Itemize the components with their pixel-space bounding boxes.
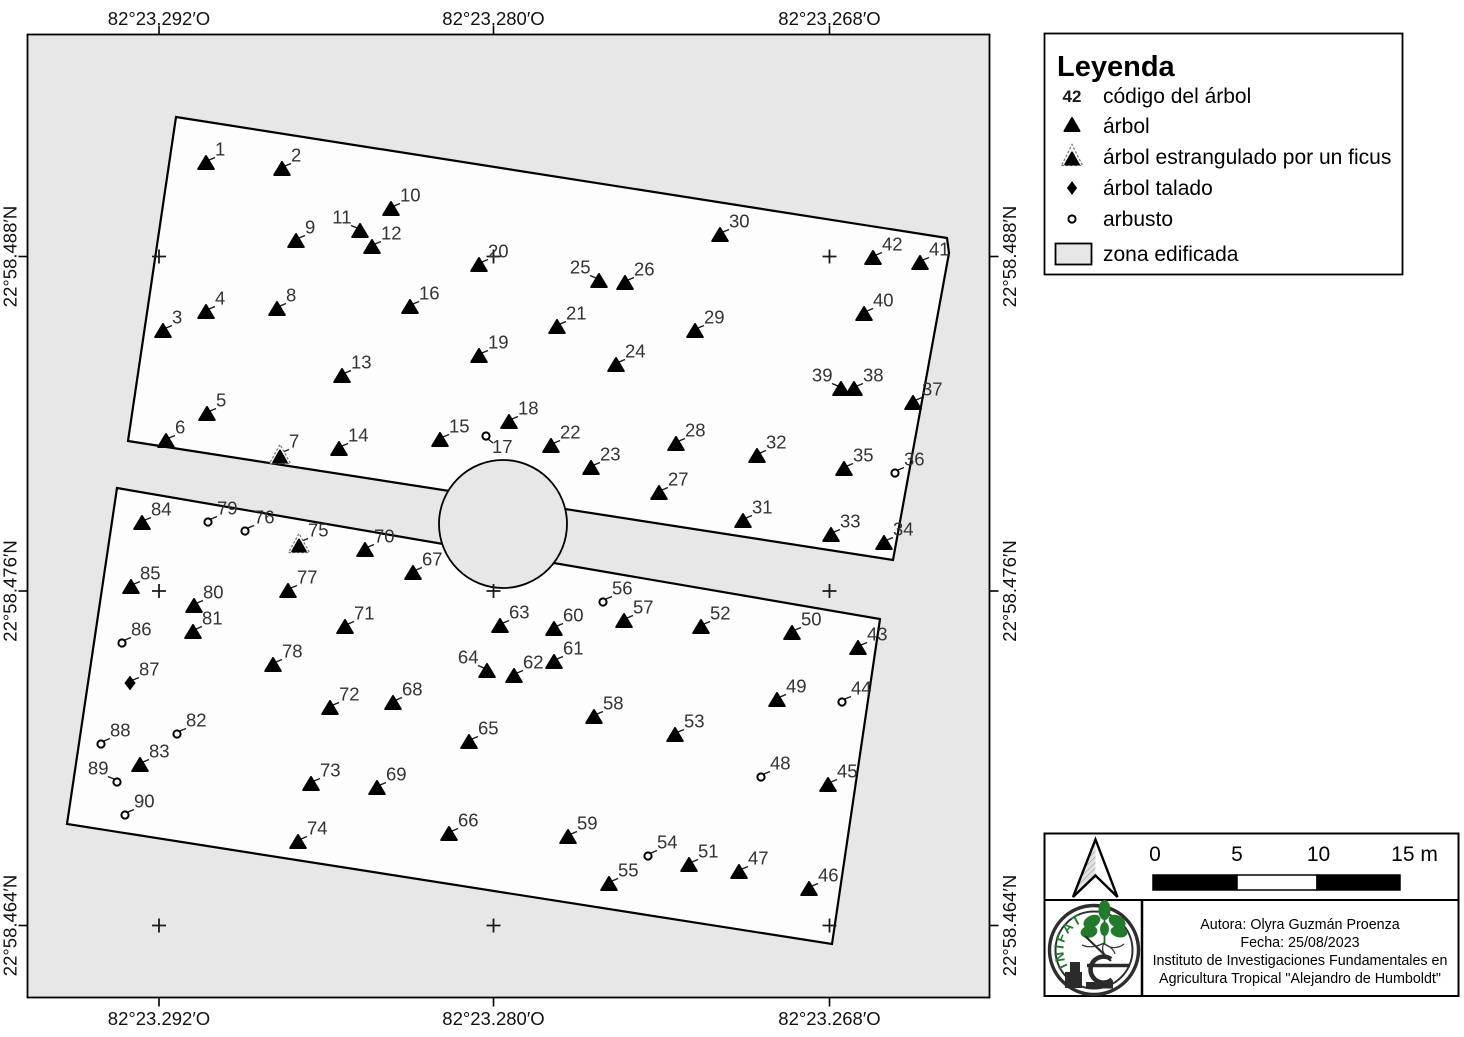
svg-text:22°58.476′N: 22°58.476′N	[0, 540, 21, 641]
svg-text:30: 30	[729, 211, 750, 232]
svg-text:59: 59	[577, 813, 598, 834]
svg-text:Instituto de Investigaciones F: Instituto de Investigaciones Fundamental…	[1153, 953, 1448, 969]
svg-text:27: 27	[668, 469, 689, 490]
svg-text:82°23.292′O: 82°23.292′O	[108, 8, 210, 29]
svg-text:62: 62	[523, 652, 544, 673]
svg-text:76: 76	[254, 507, 275, 528]
svg-text:32: 32	[766, 432, 787, 453]
svg-text:9: 9	[305, 217, 315, 238]
svg-text:49: 49	[786, 676, 807, 697]
svg-text:81: 81	[202, 608, 223, 629]
svg-text:87: 87	[139, 659, 160, 680]
svg-text:67: 67	[422, 549, 443, 570]
svg-text:12: 12	[381, 223, 402, 244]
svg-text:44: 44	[851, 678, 872, 699]
svg-text:14: 14	[348, 425, 369, 446]
svg-text:63: 63	[509, 602, 530, 623]
svg-text:88: 88	[110, 720, 131, 741]
svg-text:31: 31	[752, 497, 773, 518]
svg-text:36: 36	[904, 449, 925, 470]
svg-text:68: 68	[402, 679, 423, 700]
svg-text:77: 77	[297, 567, 318, 588]
svg-text:64: 64	[458, 647, 479, 668]
svg-text:5: 5	[216, 390, 226, 411]
svg-text:69: 69	[386, 764, 407, 785]
svg-text:Autora: Olyra Guzmán Proenza: Autora: Olyra Guzmán Proenza	[1200, 917, 1400, 933]
svg-text:82°23.268′O: 82°23.268′O	[778, 8, 880, 29]
svg-text:50: 50	[801, 609, 822, 630]
svg-text:43: 43	[867, 624, 888, 645]
svg-text:34: 34	[893, 519, 914, 540]
svg-text:47: 47	[748, 848, 769, 869]
svg-text:28: 28	[685, 420, 706, 441]
svg-text:22°58.488′N: 22°58.488′N	[999, 206, 1020, 307]
svg-text:52: 52	[710, 603, 731, 624]
svg-text:55: 55	[618, 860, 639, 881]
svg-text:78: 78	[282, 641, 303, 662]
svg-text:21: 21	[566, 303, 587, 324]
svg-text:53: 53	[684, 711, 705, 732]
svg-text:18: 18	[518, 398, 539, 419]
svg-text:22°58.464′N: 22°58.464′N	[999, 875, 1020, 976]
svg-text:79: 79	[217, 498, 238, 519]
svg-text:arbusto: arbusto	[1103, 208, 1173, 231]
svg-text:26: 26	[634, 259, 655, 280]
svg-text:80: 80	[203, 582, 224, 603]
svg-text:1: 1	[215, 139, 225, 160]
svg-text:11: 11	[332, 207, 351, 228]
svg-text:82°23.268′O: 82°23.268′O	[778, 1008, 880, 1029]
svg-text:38: 38	[863, 365, 884, 386]
svg-text:25: 25	[570, 257, 591, 278]
svg-text:10: 10	[1307, 843, 1330, 866]
svg-text:árbol talado: árbol talado	[1103, 177, 1213, 200]
svg-text:árbol estrangulado por un ficu: árbol estrangulado por un ficus	[1103, 146, 1391, 169]
svg-text:37: 37	[922, 379, 943, 400]
svg-text:42: 42	[882, 234, 903, 255]
svg-text:3: 3	[172, 307, 182, 328]
svg-text:22°58.464′N: 22°58.464′N	[0, 875, 21, 976]
svg-text:5: 5	[1231, 843, 1243, 866]
svg-text:24: 24	[625, 341, 646, 362]
svg-text:46: 46	[818, 865, 839, 886]
svg-text:82: 82	[186, 710, 207, 731]
svg-text:58: 58	[603, 693, 624, 714]
svg-text:42: 42	[1063, 87, 1082, 106]
svg-text:35: 35	[853, 445, 874, 466]
svg-text:60: 60	[563, 605, 584, 626]
svg-text:árbol: árbol	[1103, 115, 1150, 138]
svg-text:22°58.488′N: 22°58.488′N	[0, 206, 21, 307]
svg-text:71: 71	[354, 603, 375, 624]
svg-text:17: 17	[492, 436, 513, 457]
svg-text:45: 45	[837, 761, 858, 782]
svg-text:82°23.280′O: 82°23.280′O	[442, 8, 544, 29]
svg-text:7: 7	[289, 431, 299, 452]
svg-text:0: 0	[1149, 843, 1161, 866]
svg-text:65: 65	[478, 718, 499, 739]
svg-text:8: 8	[286, 285, 296, 306]
svg-text:90: 90	[134, 791, 155, 812]
svg-text:Fecha: 25/08/2023: Fecha: 25/08/2023	[1240, 935, 1359, 951]
svg-text:75: 75	[308, 520, 329, 541]
svg-text:61: 61	[563, 638, 584, 659]
svg-text:82°23.280′O: 82°23.280′O	[442, 1008, 544, 1029]
svg-text:66: 66	[458, 810, 479, 831]
svg-text:22°58.476′N: 22°58.476′N	[999, 540, 1020, 641]
svg-text:54: 54	[657, 832, 678, 853]
svg-text:39: 39	[812, 365, 833, 386]
svg-text:código del árbol: código del árbol	[1103, 85, 1251, 108]
svg-text:20: 20	[488, 241, 509, 262]
svg-text:72: 72	[339, 684, 360, 705]
svg-text:40: 40	[873, 290, 894, 311]
svg-text:zona edificada: zona edificada	[1103, 243, 1239, 266]
svg-text:84: 84	[151, 499, 172, 520]
svg-text:56: 56	[612, 578, 633, 599]
svg-text:23: 23	[600, 444, 621, 465]
svg-text:48: 48	[770, 753, 791, 774]
svg-text:83: 83	[149, 741, 170, 762]
svg-text:19: 19	[488, 332, 509, 353]
svg-text:29: 29	[704, 307, 725, 328]
svg-text:Leyenda: Leyenda	[1057, 51, 1176, 83]
svg-text:13: 13	[351, 352, 372, 373]
svg-text:51: 51	[698, 841, 719, 862]
svg-text:74: 74	[307, 818, 328, 839]
svg-text:89: 89	[88, 758, 109, 779]
svg-text:15: 15	[449, 416, 470, 437]
svg-text:70: 70	[374, 526, 395, 547]
svg-text:41: 41	[929, 239, 950, 260]
svg-text:Agricultura Tropical "Alejandr: Agricultura Tropical "Alejandro de Humbo…	[1159, 971, 1441, 987]
svg-text:6: 6	[175, 417, 185, 438]
svg-text:10: 10	[400, 185, 421, 206]
svg-text:4: 4	[215, 288, 225, 309]
svg-text:73: 73	[320, 760, 341, 781]
svg-text:82°23.292′O: 82°23.292′O	[108, 1008, 210, 1029]
svg-text:22: 22	[560, 422, 581, 443]
svg-text:85: 85	[140, 563, 161, 584]
svg-text:2: 2	[291, 145, 301, 166]
svg-text:33: 33	[840, 511, 861, 532]
svg-text:16: 16	[419, 283, 440, 304]
svg-text:15 m: 15 m	[1391, 843, 1438, 866]
svg-text:86: 86	[131, 619, 152, 640]
svg-text:57: 57	[633, 597, 654, 618]
